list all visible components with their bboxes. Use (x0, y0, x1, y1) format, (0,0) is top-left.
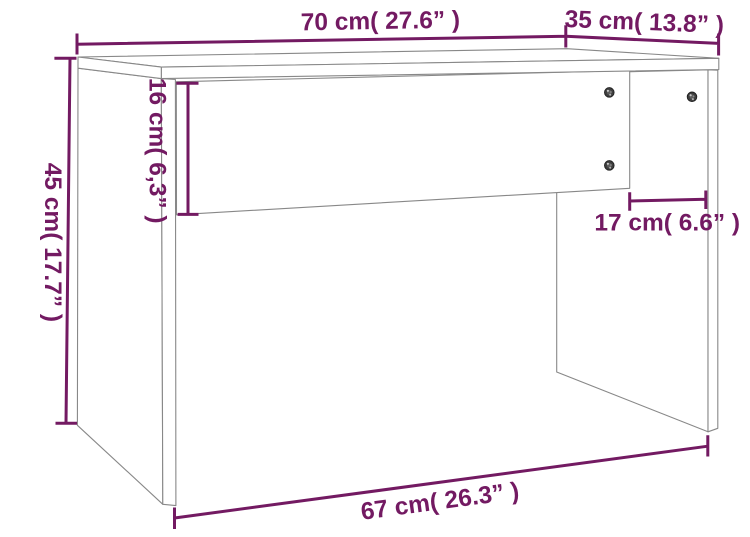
svg-text:70 cm( 27.6” ): 70 cm( 27.6” ) (300, 7, 460, 37)
svg-text:17 cm( 6.6” ): 17 cm( 6.6” ) (594, 209, 740, 236)
svg-text:16 cm( 6,3” ): 16 cm( 6,3” ) (144, 78, 171, 224)
svg-text:45 cm( 17.7” ): 45 cm( 17.7” ) (39, 163, 66, 322)
